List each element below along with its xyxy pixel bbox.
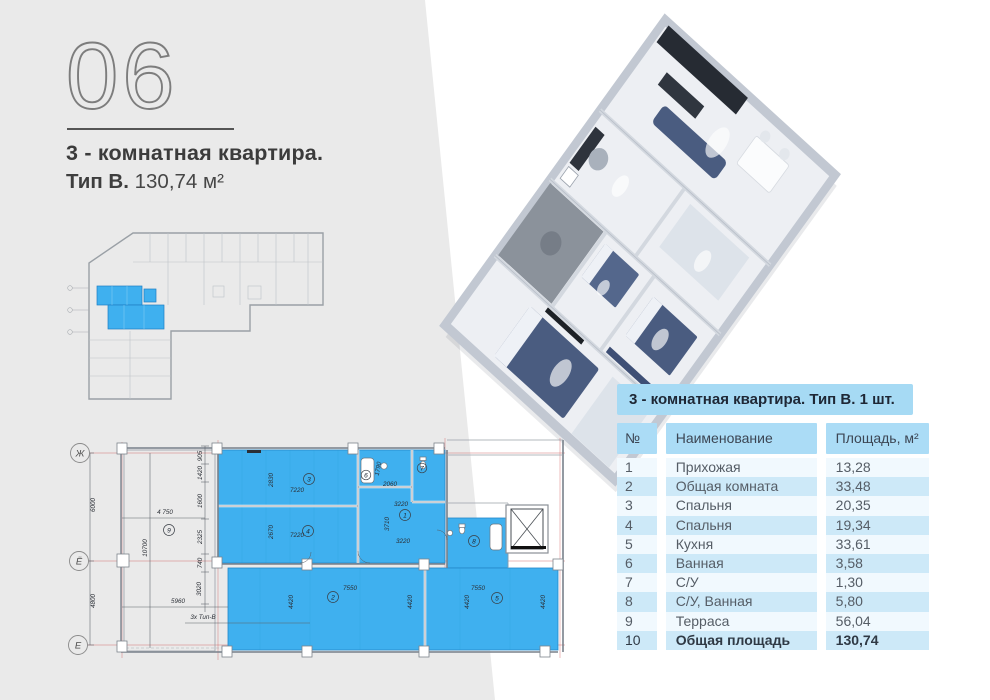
cell-area: 5,80: [826, 592, 929, 611]
dim-label: 3020: [196, 582, 203, 597]
highlighted-apartment: [97, 286, 164, 329]
apartment-type-banner: 3 - комнатная квартира. Тип В. 1 шт.: [617, 384, 913, 415]
cell-num: 2: [617, 477, 657, 496]
room-number: 3: [307, 477, 311, 484]
table-row: 8 С/У, Ванная 5,80: [617, 592, 929, 611]
divider-line: [67, 128, 234, 130]
dim-label: 5960: [171, 598, 186, 605]
dim-label: 1420: [197, 466, 204, 481]
room-number: 5: [495, 596, 499, 603]
dim-label: 2830: [268, 473, 275, 489]
dim-label: 7220: [290, 532, 305, 539]
dim-label: 740: [197, 557, 204, 568]
dim-label: 7550: [343, 585, 358, 592]
building-key-plan: [55, 220, 335, 410]
dim-label: 7220: [290, 487, 305, 494]
cell-area: 130,74: [826, 631, 929, 650]
dim-label: 4 750: [157, 509, 173, 516]
balcony-door-mark: [247, 450, 261, 453]
cell-name: С/У, Ванная: [666, 592, 817, 611]
cell-num: 1: [617, 458, 657, 477]
apartment-floorplan-2d: Ж Ё Е 3 4 9 1 6 7 8 2 5 6000 4800 905: [55, 430, 590, 698]
area-table: № Наименование Площадь, м² 1 Прихожая 13…: [617, 423, 929, 650]
cell-name: С/У: [666, 573, 817, 592]
area-label: 130,74 м²: [135, 170, 224, 193]
key-plan-axis-marks: [68, 286, 89, 335]
cell-name: Ванная: [666, 554, 817, 573]
col-header-area: Площадь, м²: [826, 423, 929, 454]
table-row: 4 Спальня 19,34: [617, 516, 929, 535]
cell-name: Спальня: [666, 496, 817, 515]
render-group: [440, 20, 841, 492]
axis-label: Е: [75, 641, 82, 652]
dim-label: 2060: [382, 481, 398, 488]
cell-num: 10: [617, 631, 657, 650]
room-number: 9: [167, 528, 171, 535]
cell-name: Общая площадь: [666, 631, 817, 650]
cell-area: 1,30: [826, 573, 929, 592]
cell-area: 19,34: [826, 516, 929, 535]
unit-number-graphic: 06: [66, 22, 266, 118]
table-row: 5 Кухня 33,61: [617, 535, 929, 554]
dim-label: 4800: [90, 594, 97, 609]
table-row: 3 Спальня 20,35: [617, 496, 929, 515]
cell-num: 6: [617, 554, 657, 573]
dim-label: 4420: [464, 595, 471, 610]
room-number: 7: [420, 466, 424, 473]
axis-label: Ё: [76, 557, 83, 568]
page-subtitle: Тип В. 130,74 м²: [66, 170, 426, 194]
dim-label: 4420: [540, 595, 547, 610]
cell-area: 3,58: [826, 554, 929, 573]
cell-area: 56,04: [826, 612, 929, 631]
cell-num: 3: [617, 496, 657, 515]
table-row: 1 Прихожая 13,28: [617, 458, 929, 477]
cell-num: 9: [617, 612, 657, 631]
table-header-row: № Наименование Площадь, м²: [617, 423, 929, 454]
dim-label: 7550: [471, 585, 486, 592]
table-row-total: 10 Общая площадь 130,74: [617, 631, 929, 650]
cell-num: 5: [617, 535, 657, 554]
cell-name: Терраса: [666, 612, 817, 631]
dim-label: 3220: [396, 538, 411, 545]
cell-area: 13,28: [826, 458, 929, 477]
table-row: 6 Ванная 3,58: [617, 554, 929, 573]
dim-label: 4420: [407, 595, 414, 610]
cell-name: Спальня: [666, 516, 817, 535]
type-label: Тип В.: [66, 170, 129, 193]
dim-label: 1600: [197, 494, 204, 509]
cell-area: 20,35: [826, 496, 929, 515]
axis-bubbles: Ж Ё Е: [69, 444, 90, 655]
col-header-name: Наименование: [666, 423, 817, 454]
cell-name: Общая комната: [666, 477, 817, 496]
table-row: 2 Общая комната 33,48: [617, 477, 929, 496]
unit-number: 06: [66, 23, 179, 118]
dim-label: 4420: [288, 595, 295, 610]
dim-label: 6000: [90, 498, 97, 513]
room-number: 2: [330, 595, 335, 602]
dim-label: 3220: [394, 501, 409, 508]
axis-label: Ж: [75, 449, 86, 460]
col-header-num: №: [617, 423, 657, 454]
dim-label: 2325: [197, 530, 204, 546]
table-row: 9 Терраса 56,04: [617, 612, 929, 631]
cell-num: 4: [617, 516, 657, 535]
dim-label: 3710: [384, 517, 391, 532]
cell-num: 8: [617, 592, 657, 611]
brochure-page: 06 3 - комнатная квартира. Тип В. 130,74…: [0, 0, 990, 700]
dim-label: 2670: [268, 525, 275, 541]
room-number: 8: [472, 539, 476, 546]
room-number: 4: [306, 529, 310, 536]
header-block: 06 3 - комнатная квартира. Тип В. 130,74…: [66, 22, 426, 194]
table-row: 7 С/У 1,30: [617, 573, 929, 592]
elevator-shaft: [506, 505, 548, 553]
cell-name: Прихожая: [666, 458, 817, 477]
dim-label: 10700: [142, 539, 149, 557]
room-number: 6: [364, 473, 368, 480]
cell-area: 33,48: [826, 477, 929, 496]
dim-label: 905: [197, 450, 204, 461]
cell-name: Кухня: [666, 535, 817, 554]
room-number: 1: [403, 513, 407, 520]
cell-num: 7: [617, 573, 657, 592]
page-title: 3 - комнатная квартира.: [66, 140, 426, 167]
cell-area: 33,61: [826, 535, 929, 554]
type-count-label: 3x Тип-В: [190, 614, 215, 621]
